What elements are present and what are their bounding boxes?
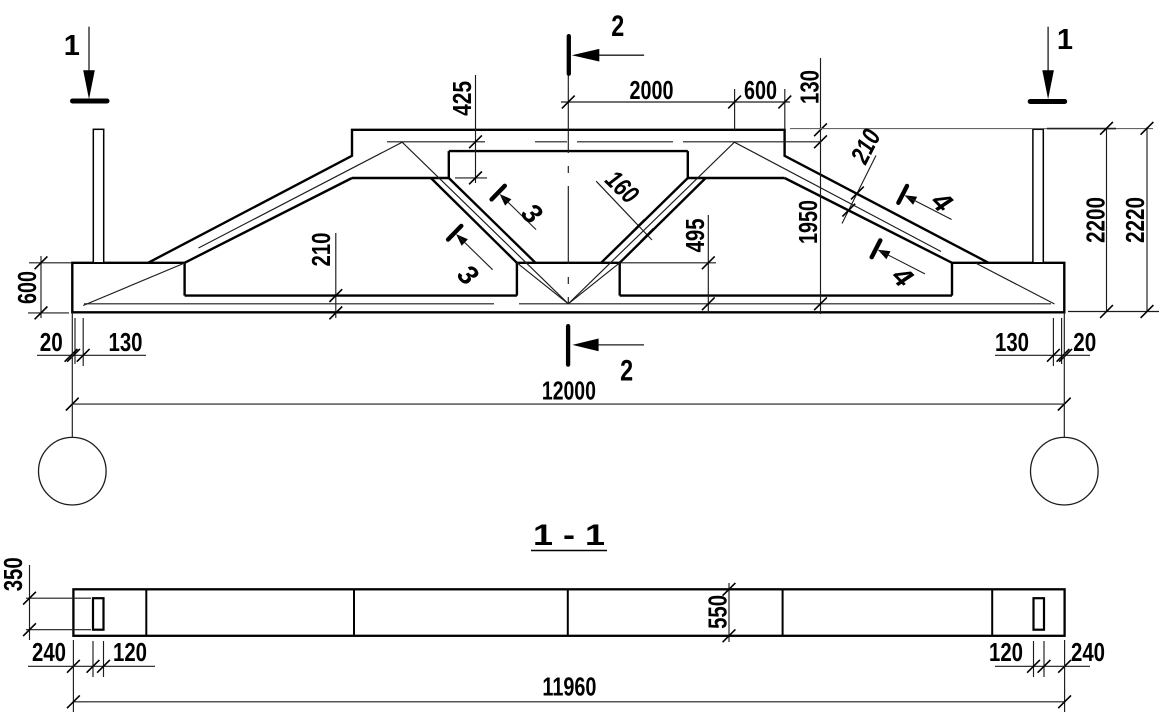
svg-text:1: 1 xyxy=(64,30,80,62)
svg-text:12000: 12000 xyxy=(542,376,596,406)
svg-text:240: 240 xyxy=(32,637,66,667)
svg-text:600: 600 xyxy=(12,271,42,304)
svg-text:350: 350 xyxy=(0,557,28,591)
svg-text:495: 495 xyxy=(680,218,710,252)
svg-text:1: 1 xyxy=(1057,24,1073,56)
svg-text:1950: 1950 xyxy=(793,200,823,244)
svg-text:240: 240 xyxy=(1071,637,1105,667)
svg-text:550: 550 xyxy=(702,595,732,629)
svg-text:600: 600 xyxy=(744,75,777,105)
svg-text:20: 20 xyxy=(40,327,63,357)
svg-text:20: 20 xyxy=(1073,327,1096,357)
svg-text:425: 425 xyxy=(447,81,477,116)
svg-text:11960: 11960 xyxy=(542,672,596,702)
svg-text:2000: 2000 xyxy=(630,75,674,105)
svg-text:2: 2 xyxy=(611,10,624,43)
svg-text:120: 120 xyxy=(989,637,1023,667)
svg-text:120: 120 xyxy=(113,637,147,667)
svg-text:210: 210 xyxy=(306,233,336,267)
svg-text:2: 2 xyxy=(620,355,633,388)
svg-text:130: 130 xyxy=(109,327,143,357)
svg-text:1 - 1: 1 - 1 xyxy=(533,519,605,552)
svg-text:130: 130 xyxy=(995,327,1029,357)
svg-text:2200: 2200 xyxy=(1081,197,1111,243)
svg-text:2220: 2220 xyxy=(1120,197,1150,243)
